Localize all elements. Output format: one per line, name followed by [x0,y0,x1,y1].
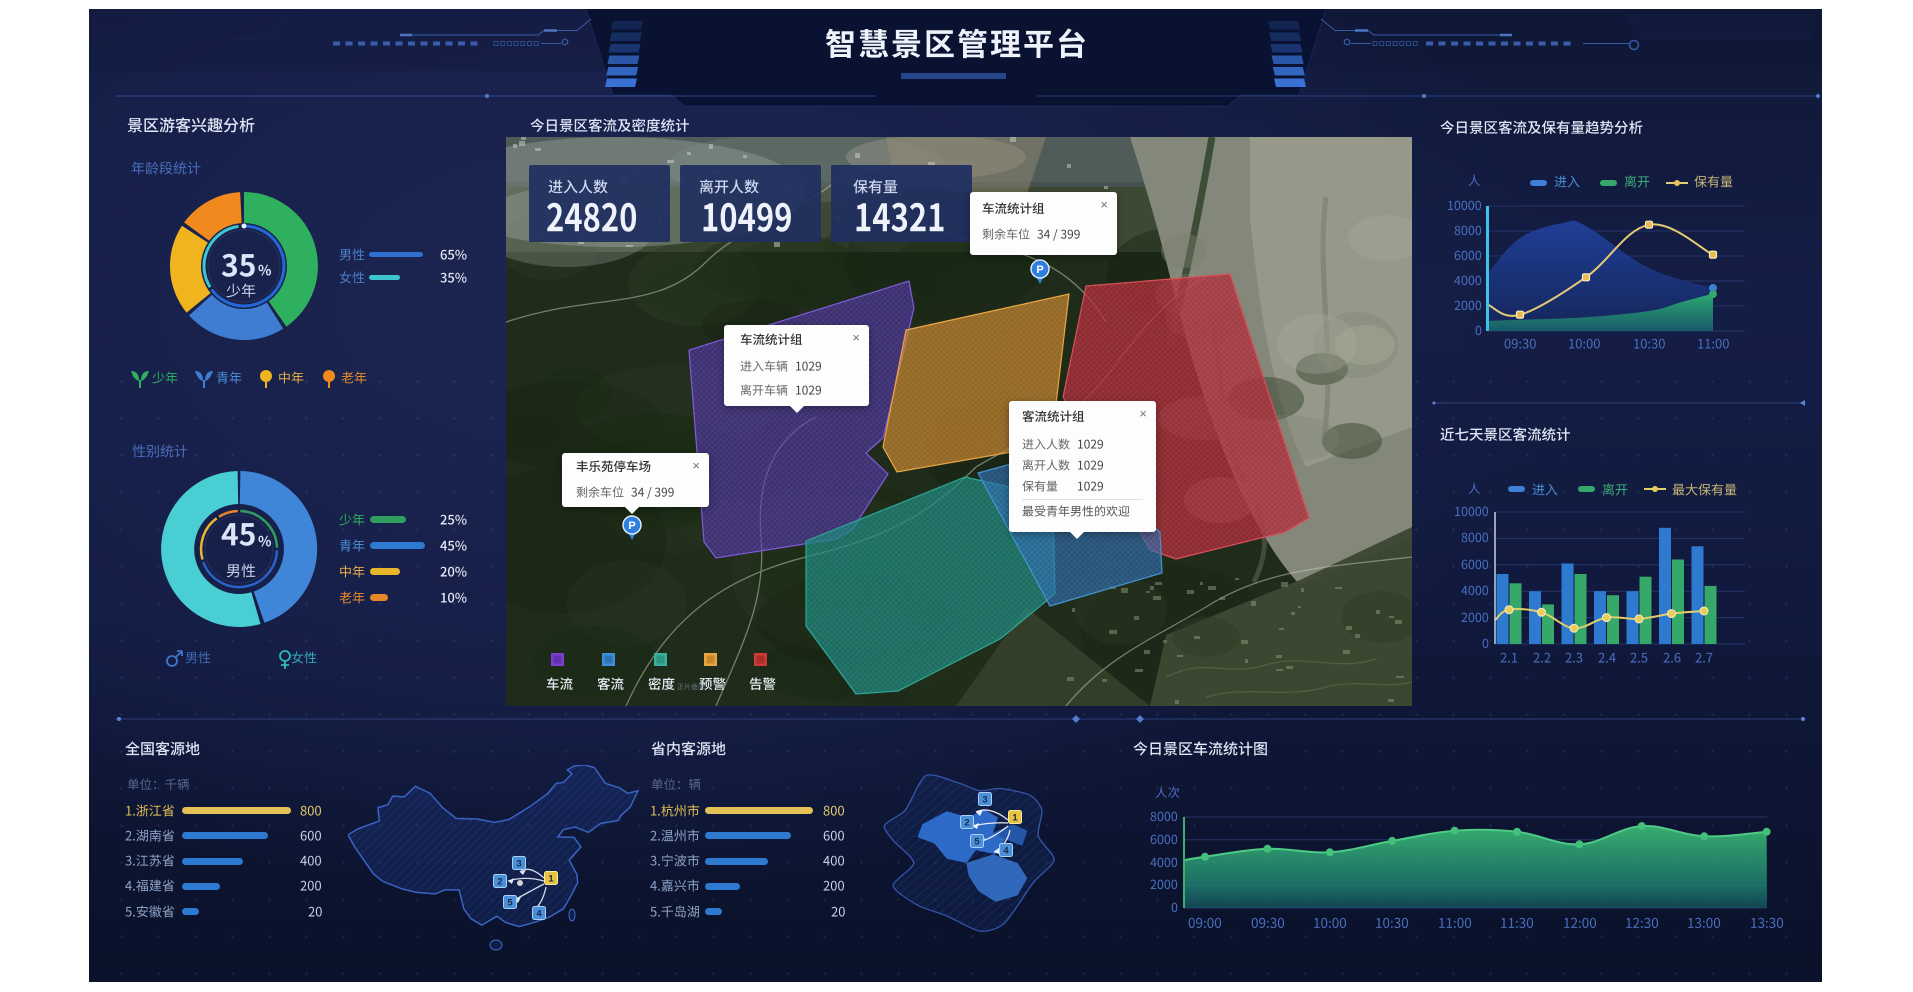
svg-text:5: 5 [507,898,513,909]
svg-text:4: 4 [1003,846,1009,857]
svg-text:2: 2 [964,818,969,829]
svg-text:2: 2 [497,877,502,888]
svg-text:1: 1 [548,874,554,885]
svg-text:P: P [1036,264,1043,276]
svg-text:3: 3 [516,859,521,870]
svg-text:1: 1 [1012,813,1018,824]
svg-text:5: 5 [974,837,980,848]
svg-text:3: 3 [982,795,987,806]
svg-text:P: P [628,520,635,532]
svg-text:4: 4 [536,909,542,920]
